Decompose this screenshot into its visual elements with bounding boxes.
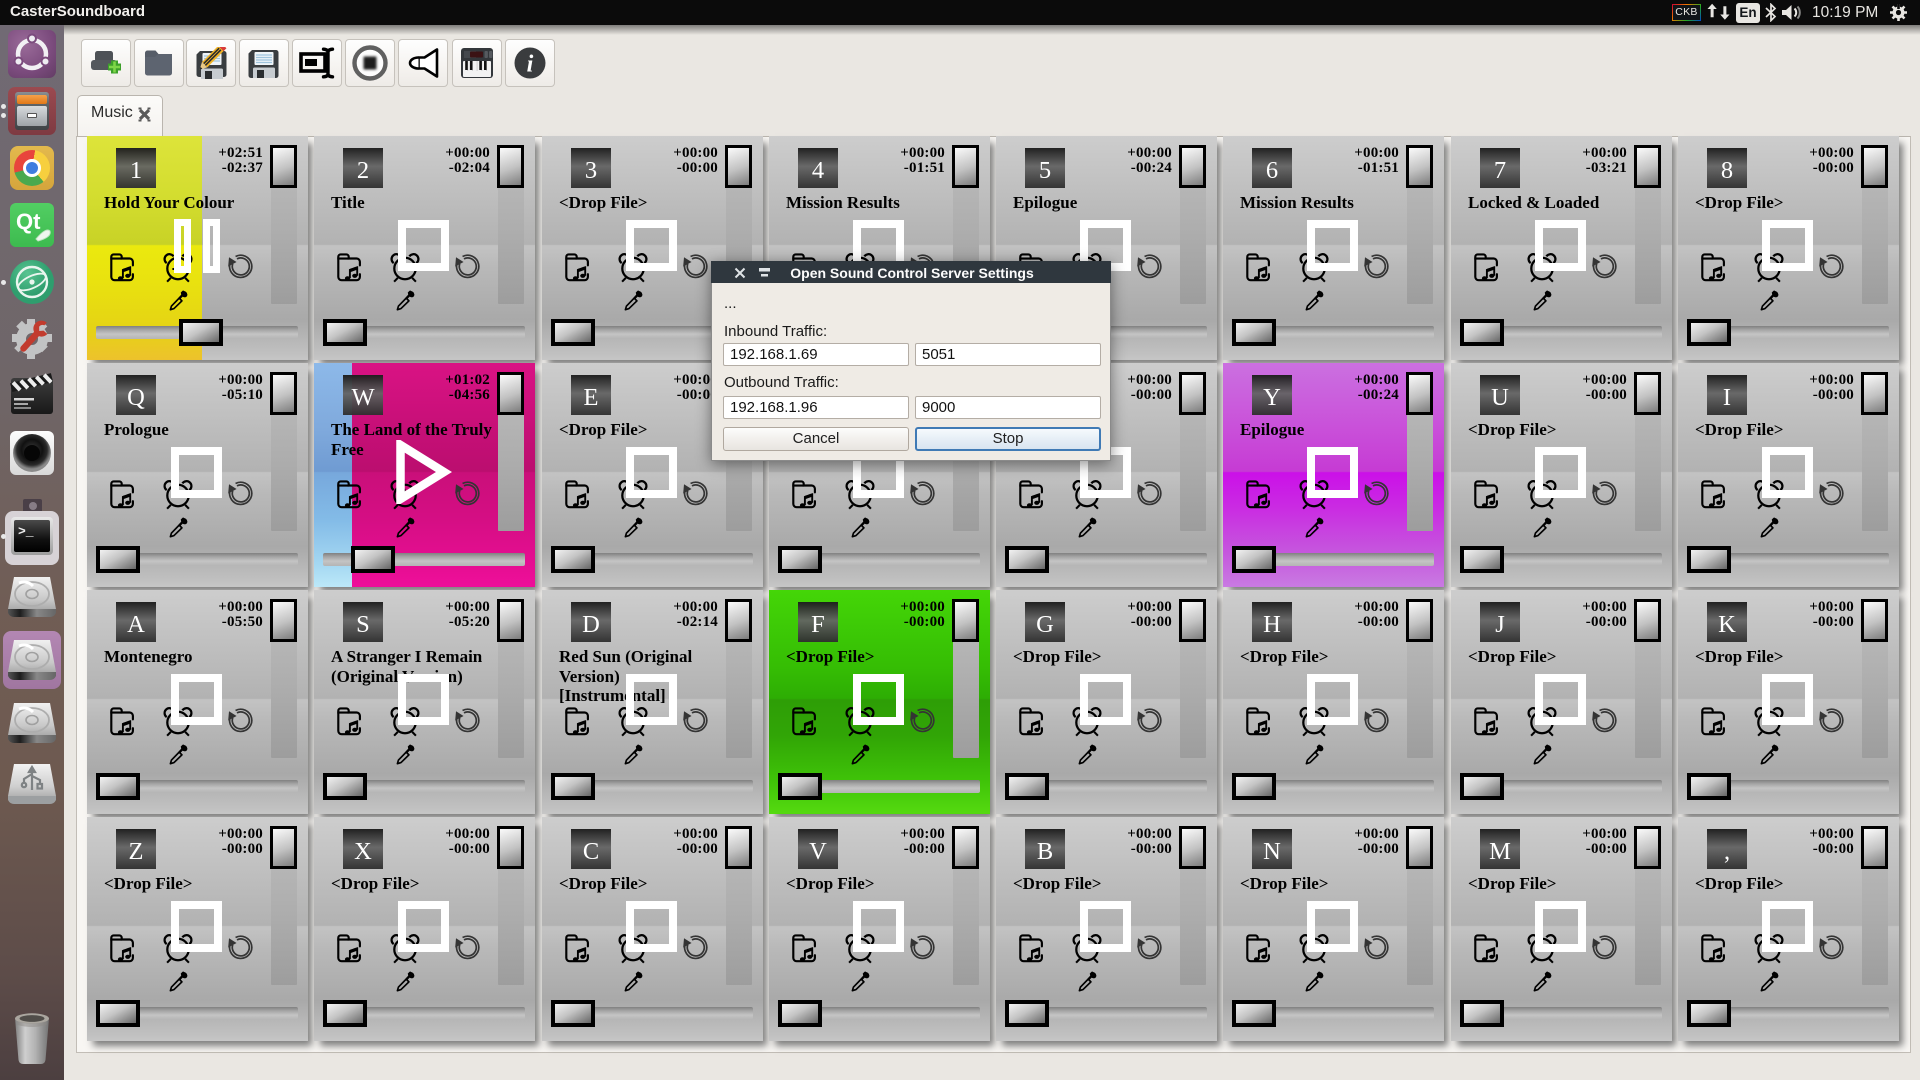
- svg-text:i: i: [527, 52, 534, 78]
